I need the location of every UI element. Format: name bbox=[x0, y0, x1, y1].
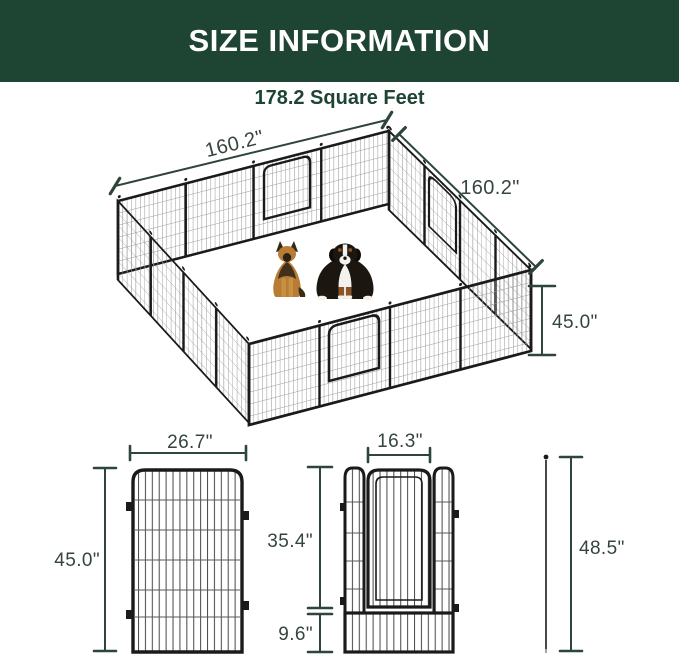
door-width-label: 16.3" bbox=[377, 431, 423, 452]
stake-knob bbox=[544, 455, 549, 460]
door-bottom-dimension: 9.6" bbox=[278, 614, 332, 652]
door-panel-diagram: 16.3" 35.4" 9.6" bbox=[267, 431, 459, 652]
pen-height-label: 45.0" bbox=[552, 312, 598, 333]
door-height-dimension: 35.4" bbox=[267, 467, 332, 608]
panel-height-label: 45.0" bbox=[54, 550, 100, 571]
door-height-label: 35.4" bbox=[267, 531, 313, 552]
panel-diagram: 26.7" 45.0" bbox=[54, 432, 249, 652]
size-information-infographic: { "header": { "title": "SIZE INFORMATION… bbox=[0, 0, 679, 655]
page-title: SIZE INFORMATION bbox=[189, 23, 491, 59]
panel-height-dimension: 45.0" bbox=[54, 468, 116, 651]
door-bottom-label: 9.6" bbox=[278, 624, 313, 645]
header-banner: SIZE INFORMATION bbox=[0, 0, 679, 82]
german-shepherd-illustration bbox=[273, 241, 305, 297]
bernese-mountain-dog-illustration bbox=[316, 244, 373, 301]
stake-height-label: 48.5" bbox=[579, 538, 625, 559]
stake-diagram: 48.5" bbox=[544, 455, 625, 653]
pen-height-dimension: 45.0" bbox=[529, 286, 598, 355]
door-width-dimension: 16.3" bbox=[368, 431, 430, 462]
pen-isometric-illustration: 160.2" 160.2" 45.0" bbox=[110, 112, 597, 425]
pen-depth-label: 160.2" bbox=[460, 177, 520, 199]
panel-width-dimension: 26.7" bbox=[130, 432, 246, 460]
square-feet-subtitle: 178.2 Square Feet bbox=[0, 85, 679, 111]
stake-height-dimension: 48.5" bbox=[560, 457, 625, 651]
panel-width-label: 26.7" bbox=[167, 432, 213, 453]
